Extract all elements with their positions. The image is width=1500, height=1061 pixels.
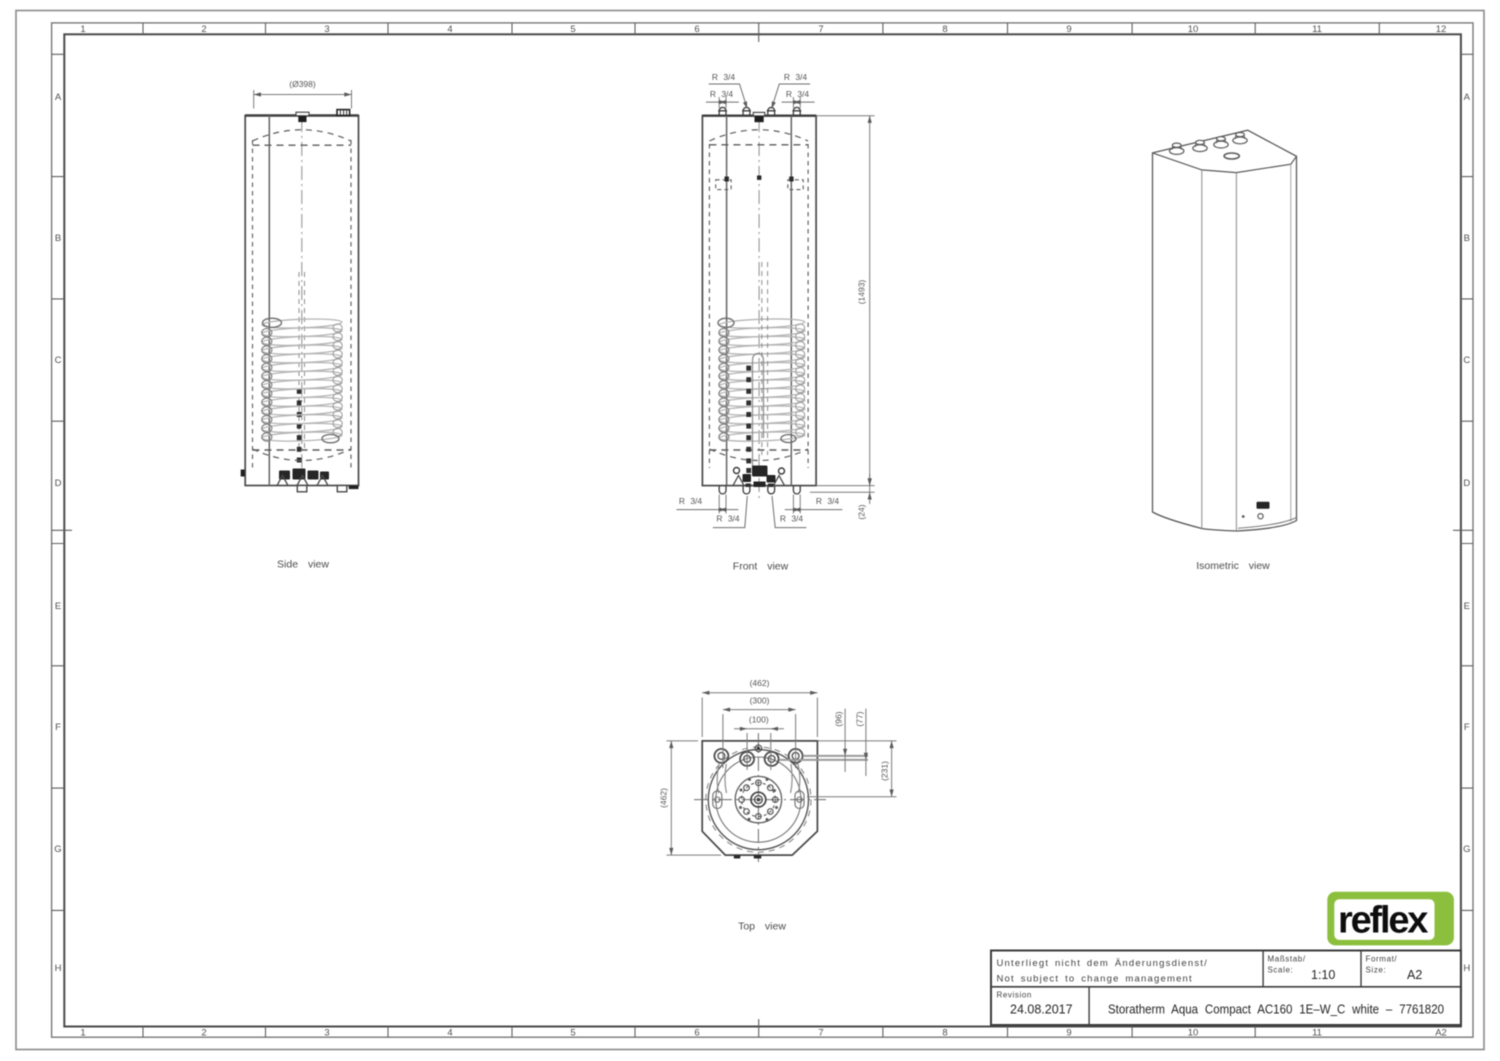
svg-text:(77): (77) <box>855 711 865 726</box>
svg-text:G: G <box>54 844 61 855</box>
svg-text:5: 5 <box>570 24 575 35</box>
svg-text:Format/: Format/ <box>1366 955 1398 964</box>
svg-text:Maßstab/: Maßstab/ <box>1268 955 1306 964</box>
svg-text:3: 3 <box>324 24 329 35</box>
svg-text:24.08.2017: 24.08.2017 <box>1010 1003 1073 1017</box>
svg-text:2: 2 <box>201 1028 206 1039</box>
svg-text:Unterliegt nicht dem Änderungs: Unterliegt nicht dem Änderungsdienst/ <box>997 958 1208 969</box>
svg-text:Scale:: Scale: <box>1268 966 1294 975</box>
svg-text:Revision: Revision <box>997 991 1032 1000</box>
svg-text:(300): (300) <box>750 696 770 706</box>
svg-text:F: F <box>55 722 61 733</box>
svg-text:4: 4 <box>447 1028 452 1039</box>
svg-text:A: A <box>1464 92 1471 103</box>
svg-text:(231): (231) <box>880 761 890 781</box>
svg-text:7: 7 <box>818 24 823 35</box>
svg-text:(1493): (1493) <box>857 280 867 305</box>
svg-text:Storatherm Aqua Compact AC160: Storatherm Aqua Compact AC160 1E–W_C whi… <box>1108 1003 1444 1017</box>
svg-text:R 3/4: R 3/4 <box>784 72 808 82</box>
svg-text:reflex: reflex <box>1338 900 1428 942</box>
svg-text:R 3/4: R 3/4 <box>816 496 840 506</box>
svg-text:E: E <box>55 601 61 612</box>
svg-text:G: G <box>1463 844 1470 855</box>
svg-text:H: H <box>55 963 62 974</box>
svg-text:C: C <box>55 355 62 366</box>
svg-text:7: 7 <box>818 1028 823 1039</box>
svg-text:1: 1 <box>80 1028 85 1039</box>
svg-text:1:10: 1:10 <box>1311 968 1335 982</box>
svg-text:H: H <box>1463 963 1470 974</box>
svg-text:R 3/4: R 3/4 <box>780 514 804 524</box>
svg-text:R 3/4: R 3/4 <box>716 514 740 524</box>
svg-text:(Ø398): (Ø398) <box>289 79 316 89</box>
svg-text:R 3/4: R 3/4 <box>710 89 734 99</box>
svg-text:5: 5 <box>570 1028 575 1039</box>
svg-text:11: 11 <box>1312 1028 1322 1039</box>
svg-text:6: 6 <box>694 1028 699 1039</box>
svg-text:(96): (96) <box>834 711 844 726</box>
svg-text:1: 1 <box>80 24 85 35</box>
svg-text:2: 2 <box>201 24 206 35</box>
svg-text:E: E <box>1464 601 1470 612</box>
svg-text:Not subject to change manageme: Not subject to change management <box>997 974 1193 985</box>
svg-text:12: 12 <box>1436 24 1447 35</box>
svg-text:R 3/4: R 3/4 <box>679 496 703 506</box>
svg-text:4: 4 <box>447 24 452 35</box>
svg-text:D: D <box>1463 478 1470 489</box>
svg-text:3: 3 <box>324 1028 329 1039</box>
svg-text:10: 10 <box>1188 1028 1199 1039</box>
svg-text:A2: A2 <box>1407 968 1422 982</box>
svg-text:D: D <box>55 478 62 489</box>
svg-text:R 3/4: R 3/4 <box>786 89 810 99</box>
svg-text:(100): (100) <box>749 715 769 725</box>
svg-text:Size:: Size: <box>1366 966 1387 975</box>
svg-text:8: 8 <box>942 24 947 35</box>
svg-text:(462): (462) <box>750 678 770 688</box>
svg-text:(462): (462) <box>659 788 669 808</box>
svg-text:A: A <box>55 92 62 103</box>
svg-text:8: 8 <box>942 1028 947 1039</box>
svg-text:R 3/4: R 3/4 <box>712 72 736 82</box>
svg-text:F: F <box>1464 722 1470 733</box>
svg-text:(24): (24) <box>857 504 867 519</box>
svg-text:Front view: Front view <box>733 561 789 573</box>
svg-text:11: 11 <box>1312 24 1322 35</box>
svg-text:9: 9 <box>1066 24 1071 35</box>
svg-text:Side view: Side view <box>277 559 329 571</box>
svg-text:Top view: Top view <box>738 921 786 933</box>
svg-text:10: 10 <box>1188 24 1199 35</box>
svg-text:6: 6 <box>694 24 699 35</box>
svg-text:B: B <box>55 233 61 244</box>
svg-text:Isometric view: Isometric view <box>1196 560 1270 572</box>
svg-text:C: C <box>1463 355 1470 366</box>
svg-text:9: 9 <box>1066 1028 1071 1039</box>
svg-text:B: B <box>1464 233 1470 244</box>
svg-text:A2: A2 <box>1435 1028 1447 1039</box>
